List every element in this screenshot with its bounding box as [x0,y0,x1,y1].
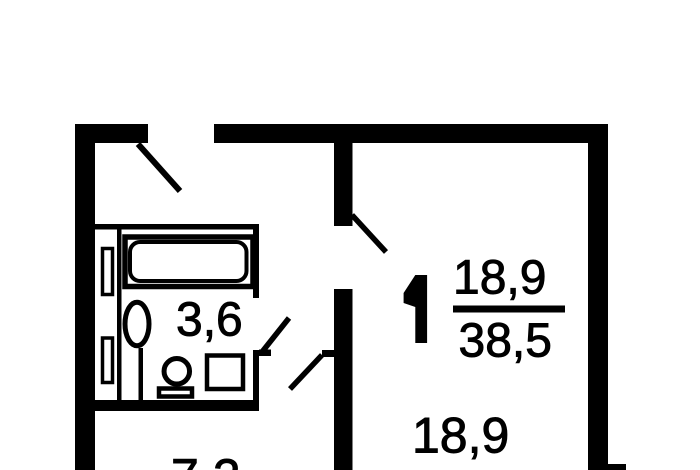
svg-text:38,5: 38,5 [459,315,552,368]
svg-text:3,6: 3,6 [176,294,243,347]
svg-text:18,9: 18,9 [453,252,546,305]
svg-text:18,9: 18,9 [412,408,509,464]
svg-text:7,2: 7,2 [171,449,241,470]
